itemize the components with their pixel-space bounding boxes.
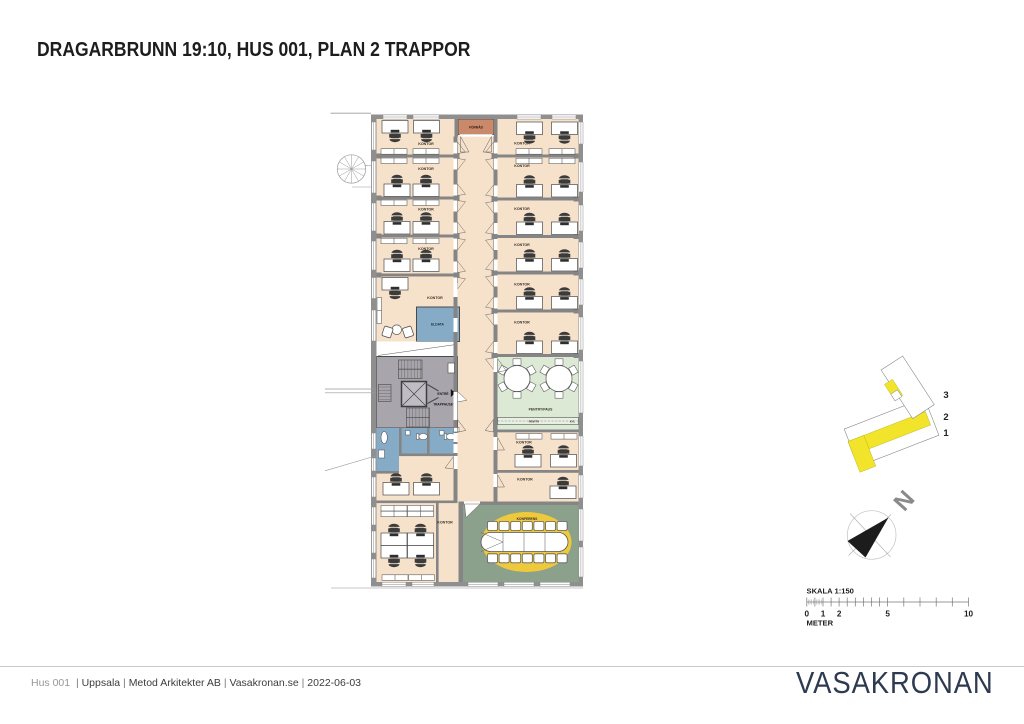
svg-text:KONTOR: KONTOR — [514, 142, 530, 146]
svg-text:ENTRÉ: ENTRÉ — [437, 391, 449, 396]
svg-text:0: 0 — [805, 610, 810, 619]
svg-text:ELDATA: ELDATA — [431, 323, 444, 327]
svg-text:KONTOR: KONTOR — [514, 164, 530, 168]
svg-text:5: 5 — [885, 610, 890, 619]
svg-text:KONTOR: KONTOR — [514, 283, 530, 287]
svg-text:1: 1 — [821, 610, 826, 619]
svg-text:KONTOR: KONTOR — [514, 207, 530, 211]
svg-text:1: 1 — [943, 428, 949, 439]
svg-text:KONTOR: KONTOR — [427, 296, 443, 300]
svg-text:KONFERENS: KONFERENS — [517, 517, 538, 521]
svg-text:FÖRRÅD: FÖRRÅD — [469, 125, 484, 130]
svg-text:METER: METER — [807, 619, 834, 628]
svg-text:KONTOR: KONTOR — [437, 521, 453, 525]
svg-text:KONTOR: KONTOR — [514, 321, 530, 325]
svg-text:KONTOR: KONTOR — [418, 208, 434, 212]
svg-text:TRAPPHUSET: TRAPPHUSET — [433, 402, 455, 406]
svg-text:2: 2 — [837, 610, 842, 619]
svg-text:3: 3 — [943, 390, 948, 401]
svg-text:KONTOR: KONTOR — [517, 478, 533, 482]
svg-text:10: 10 — [964, 610, 974, 619]
svg-text:KYL: KYL — [570, 419, 576, 423]
svg-text:KONTOR: KONTOR — [516, 441, 532, 445]
svg-text:N: N — [889, 486, 921, 517]
svg-text:PENTRY: PENTRY — [529, 419, 540, 423]
svg-text:PENTRY/PAUS: PENTRY/PAUS — [529, 408, 553, 412]
svg-text:KONTOR: KONTOR — [418, 142, 434, 146]
svg-text:2: 2 — [943, 412, 948, 423]
svg-text:KONTOR: KONTOR — [418, 167, 434, 171]
svg-text:KONTOR: KONTOR — [514, 243, 530, 247]
svg-text:SKALA 1:150: SKALA 1:150 — [807, 587, 854, 596]
